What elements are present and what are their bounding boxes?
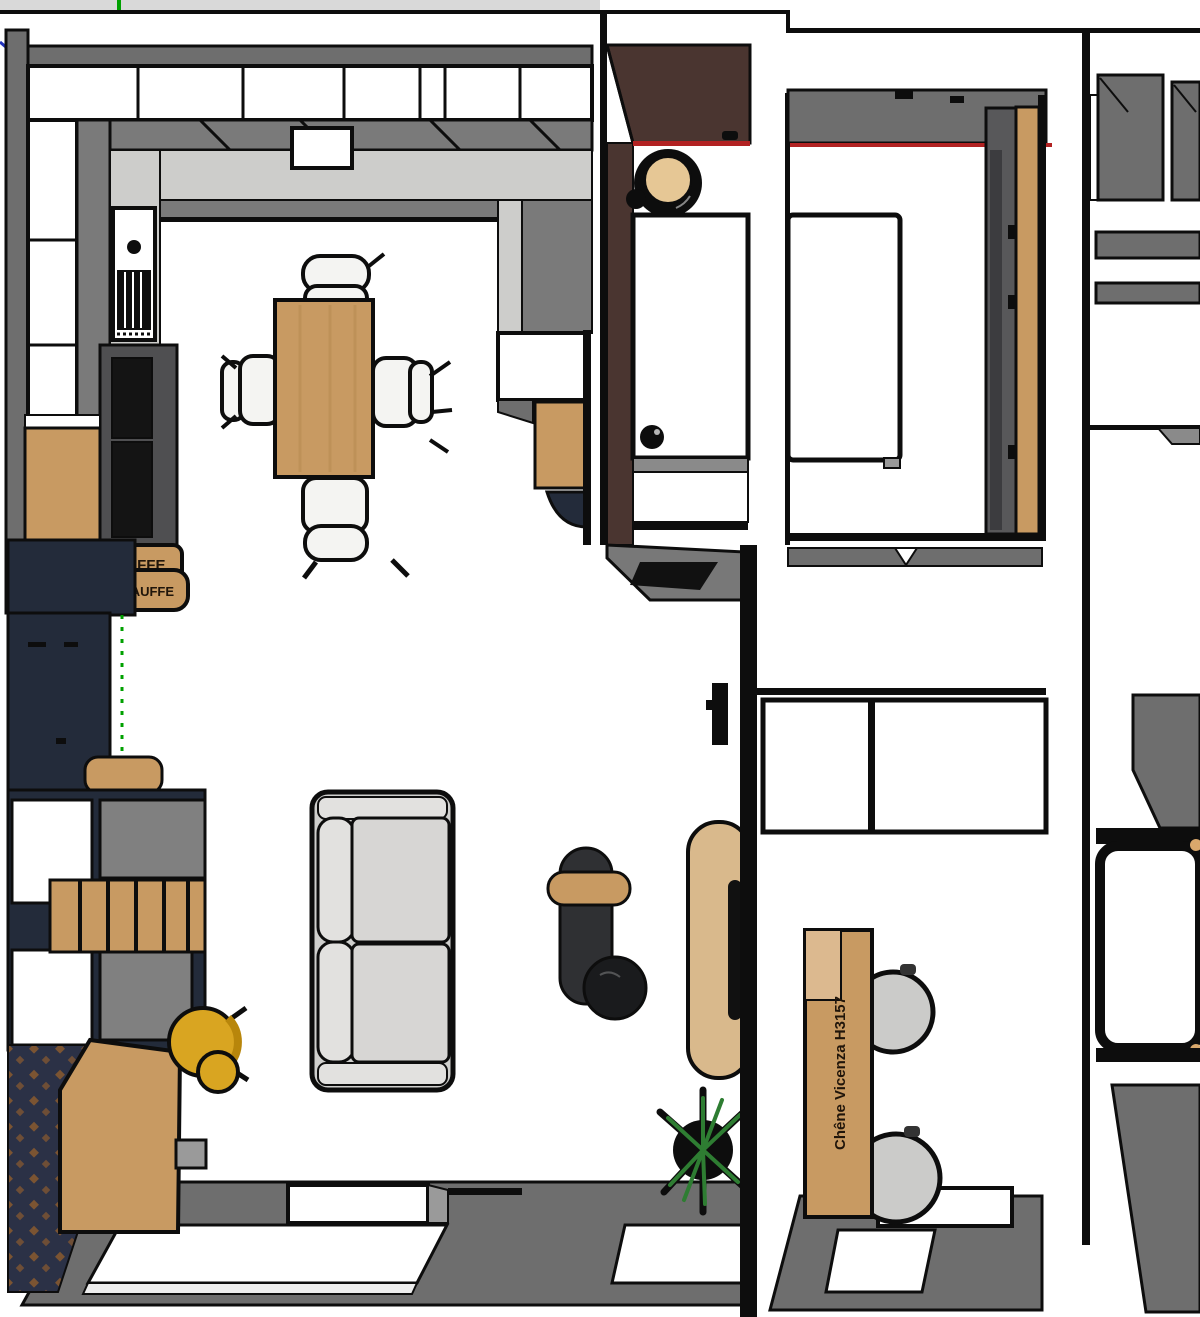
black-marble-side-table xyxy=(584,957,646,1019)
tall-navy-cabinet[interactable] xyxy=(8,540,135,793)
wood-drawer-unit[interactable] xyxy=(25,415,100,540)
hall-south-wall xyxy=(757,688,1046,695)
wood-board-on-top xyxy=(85,757,162,793)
right-apartment xyxy=(1090,75,1200,1312)
red-accent-line-entry xyxy=(633,141,750,146)
round-wall-mirror[interactable] xyxy=(626,149,702,217)
cooktop-knob xyxy=(127,240,141,254)
wood-oval-shelf xyxy=(548,872,630,905)
right-cabinet-1[interactable] xyxy=(1098,75,1163,200)
dining-chair-right[interactable] xyxy=(373,358,452,452)
kitchen-top-wall xyxy=(28,46,592,66)
oven-column[interactable] xyxy=(100,345,177,545)
window-right xyxy=(612,1225,745,1283)
open-wood-shelf xyxy=(50,880,205,952)
sofa-armrest-bottom xyxy=(318,1063,447,1085)
green-axis-tick xyxy=(117,0,121,10)
dining-chair-left[interactable] xyxy=(222,356,280,428)
dining-set xyxy=(222,254,452,578)
extractor-hood xyxy=(292,128,352,168)
sofa[interactable] xyxy=(312,792,453,1090)
sofa-armrest-top xyxy=(318,797,447,819)
study-window xyxy=(826,1230,935,1292)
bedroom-south-wall xyxy=(788,533,1046,541)
corridor-right-wall xyxy=(1082,30,1090,1245)
top-toolbar-strip xyxy=(0,0,600,10)
door-knob[interactable] xyxy=(640,425,664,449)
bedroom-right-wall xyxy=(1038,95,1046,540)
top-border-right xyxy=(786,28,1200,33)
sofa-seat-1 xyxy=(352,818,449,942)
right-bathtub[interactable] xyxy=(1096,828,1200,1062)
sofa-seat-2 xyxy=(352,944,449,1062)
coffee-table-set[interactable] xyxy=(548,848,646,1019)
door-threshold xyxy=(633,458,748,472)
window-bench xyxy=(288,1185,428,1223)
cooktop[interactable] xyxy=(113,208,155,340)
wall-mounted-panel[interactable] xyxy=(706,683,728,745)
navy-quarter-shelf xyxy=(547,492,587,527)
dividing-wall-thin xyxy=(600,12,607,545)
right-cabinet-2[interactable] xyxy=(1172,82,1200,200)
right-balcony-floor xyxy=(1112,1085,1200,1312)
dividing-wall-thick xyxy=(740,545,757,1317)
sofa-back-cushion-1 xyxy=(318,818,354,942)
bed[interactable] xyxy=(788,215,900,460)
dining-chair-bottom[interactable] xyxy=(303,478,408,578)
model-viewport[interactable]: ÇA CHAUFFE CHAUFFE xyxy=(0,0,1200,1317)
entry-door[interactable] xyxy=(633,215,748,458)
hall-shelf[interactable] xyxy=(788,548,1042,566)
top-border-left xyxy=(0,10,790,14)
closet-cells xyxy=(763,700,1046,832)
wood-cabinet-door xyxy=(535,402,587,488)
right-shelves[interactable] xyxy=(1096,232,1200,303)
desk-edge-engraving: Chêne Vicenza H3157 xyxy=(832,996,849,1150)
dining-table[interactable] xyxy=(275,300,373,477)
oak-wardrobe[interactable] xyxy=(986,107,1039,534)
sofa-back-cushion-2 xyxy=(318,942,354,1062)
middle-apartment: Chêne Vicenza H3157 xyxy=(757,30,1090,1310)
kitchen-right-arm[interactable] xyxy=(498,330,591,545)
right-armchair[interactable] xyxy=(1133,695,1200,828)
oak-door-panel xyxy=(1016,107,1039,534)
sideboard[interactable] xyxy=(8,757,205,1050)
study-desk[interactable]: Chêne Vicenza H3157 xyxy=(805,930,872,1217)
